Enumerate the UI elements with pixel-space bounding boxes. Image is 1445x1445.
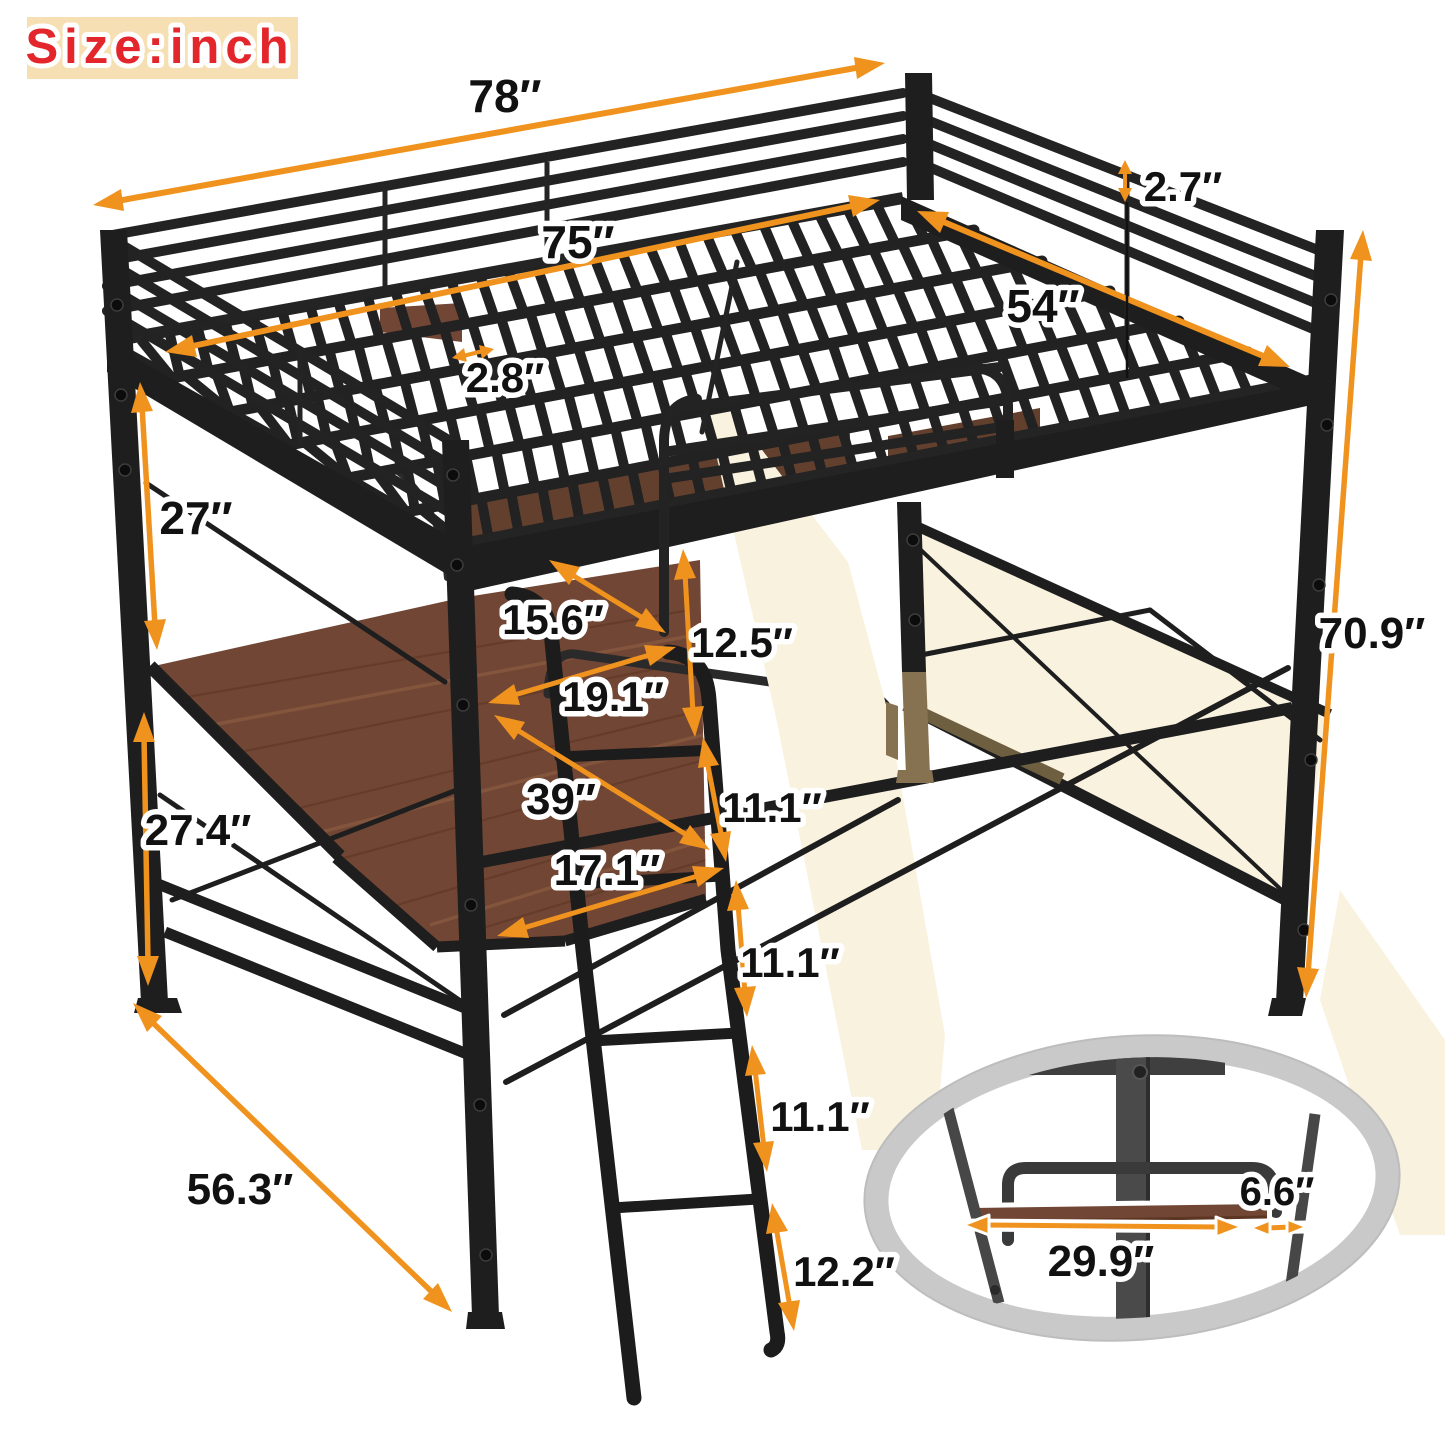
- svg-text:12.2″: 12.2″: [793, 1248, 895, 1295]
- svg-text:17.1″: 17.1″: [554, 846, 661, 895]
- svg-text:54″: 54″: [1006, 280, 1079, 332]
- svg-text:27″: 27″: [159, 492, 232, 544]
- svg-text:27.4″: 27.4″: [145, 806, 252, 855]
- svg-text:75″: 75″: [541, 216, 614, 268]
- svg-text:15.6″: 15.6″: [502, 596, 604, 643]
- svg-text:11.1″: 11.1″: [740, 939, 840, 986]
- svg-text:70.9″: 70.9″: [1319, 609, 1426, 658]
- svg-text:39″: 39″: [526, 775, 596, 824]
- svg-text:12.5″: 12.5″: [691, 619, 793, 666]
- svg-text:6.6″: 6.6″: [1240, 1170, 1315, 1214]
- svg-text:29.9″: 29.9″: [1048, 1237, 1155, 1286]
- svg-text:56.3″: 56.3″: [187, 1165, 294, 1214]
- svg-text:2.7″: 2.7″: [1144, 163, 1223, 210]
- svg-text:11.1″: 11.1″: [770, 1093, 870, 1140]
- svg-text:78″: 78″: [468, 70, 541, 122]
- svg-text:11.1″: 11.1″: [722, 784, 822, 831]
- svg-text:Size:inch: Size:inch: [25, 20, 294, 74]
- svg-text:19.1″: 19.1″: [562, 673, 664, 720]
- svg-text:2.8″: 2.8″: [466, 354, 545, 401]
